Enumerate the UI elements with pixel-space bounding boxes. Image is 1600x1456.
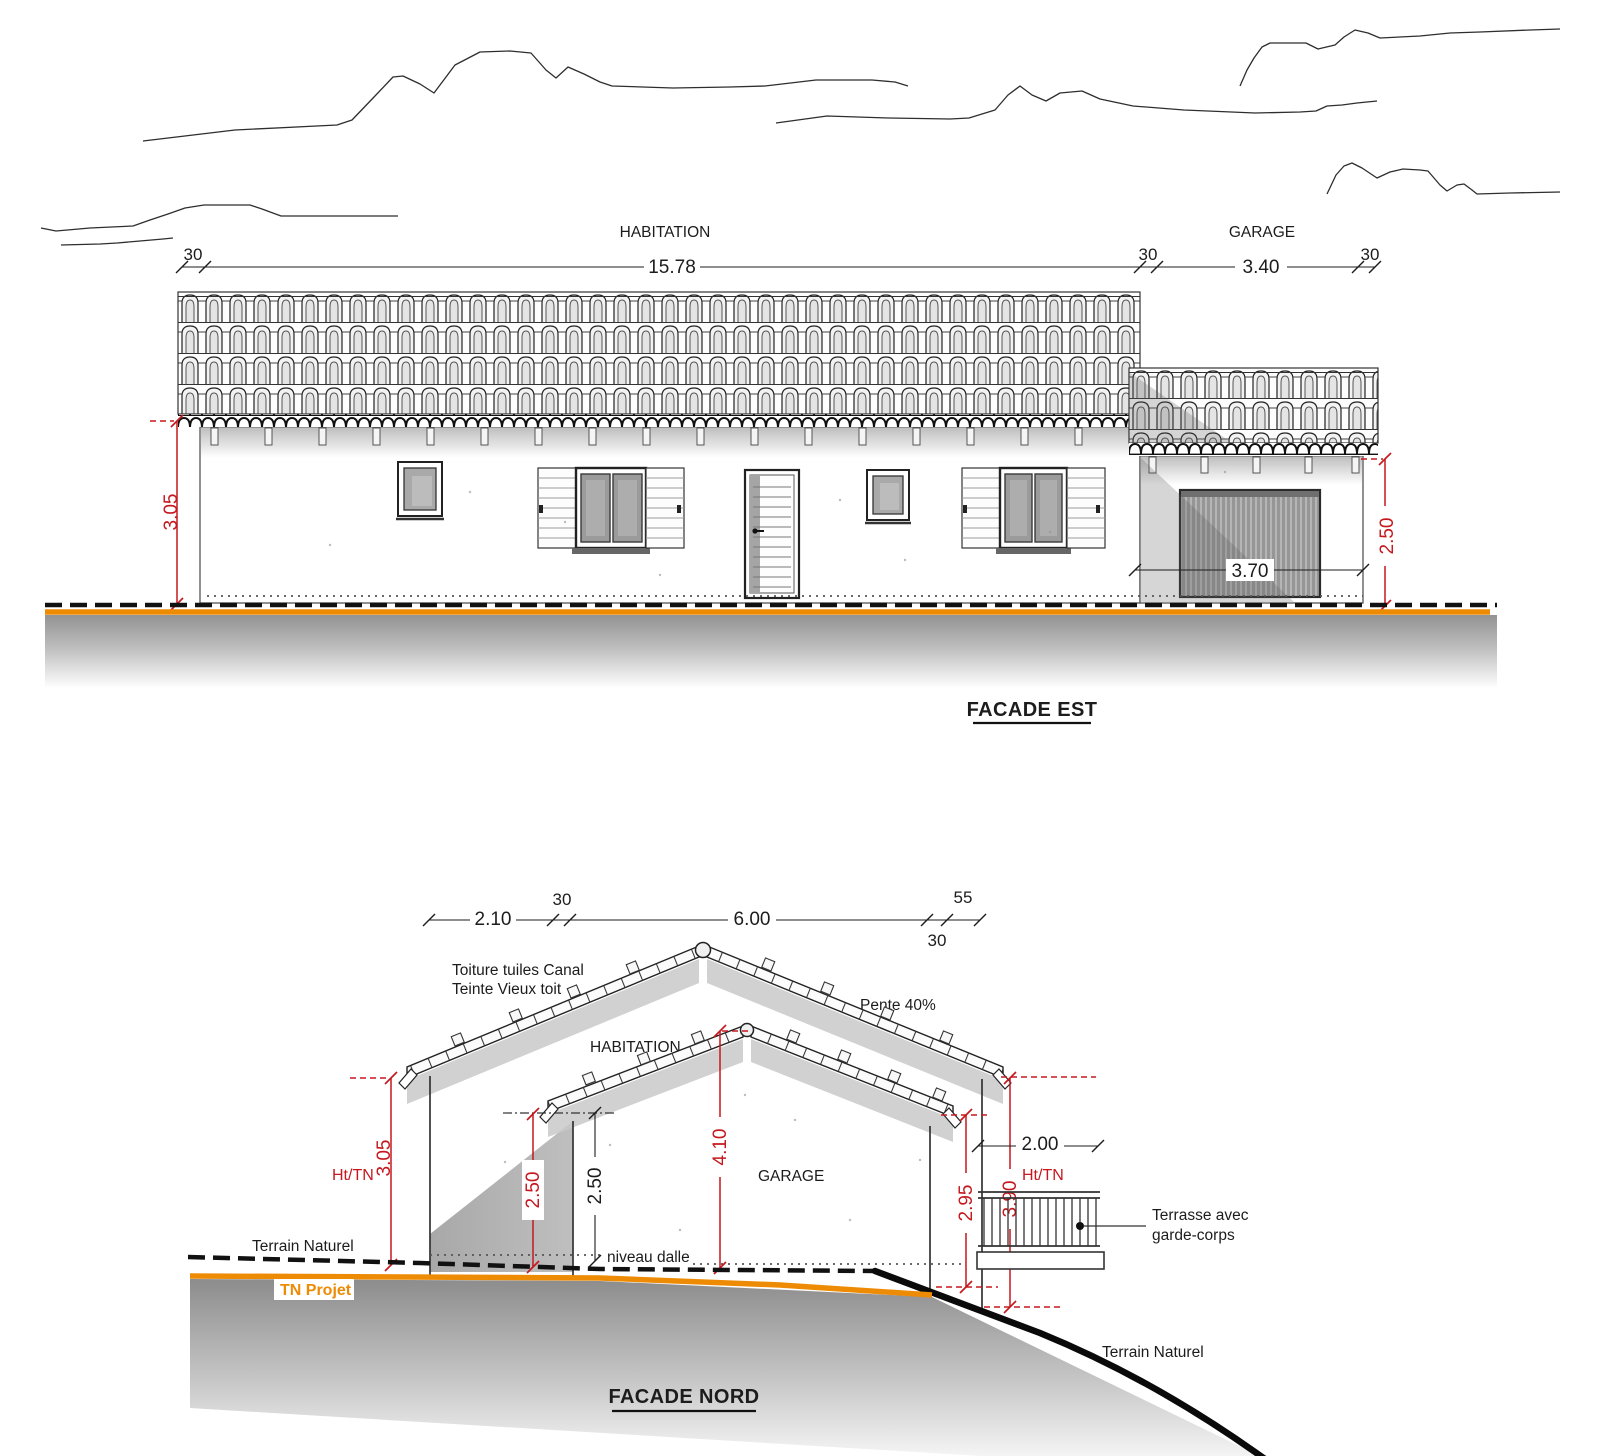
facade-nord-drawing: 2.10 30 6.00 55 30 Toiture tuiles Canal … [188,888,1272,1456]
nord-roof-note-2: Teinte Vieux toit [452,981,562,998]
nord-terrasse-label-2: garde-corps [1152,1227,1235,1244]
est-window-small-2 [865,470,911,523]
est-garage: 3.70 [1129,368,1378,603]
nord-dim-200: 2.00 [1022,1134,1059,1155]
nord-garage-ridge-cap [741,1024,754,1037]
nord-dim-305: 3.05 [374,1140,395,1177]
nord-title-text: FACADE NORD [608,1386,759,1408]
est-dim-250: 2.50 [1377,518,1398,555]
est-window-shuttered-2 [962,468,1105,554]
shutter-left [538,468,576,548]
est-dim-370: 3.70 [1232,561,1269,582]
est-dim-30-mid: 30 [1139,245,1158,264]
nord-slope-label: Pente 40% [860,997,936,1014]
architectural-sheet: HABITATION GARAGE 30 15.78 30 3.40 30 [0,0,1600,1456]
nord-dim-390: 3.90 [1000,1181,1021,1218]
est-dim-height-garage: 2.50 [1361,453,1398,612]
est-habitation-label: HABITATION [620,224,711,241]
est-garage-label: GARAGE [1229,224,1295,241]
nord-dim-410: 4.10 [710,1129,731,1166]
est-garage-eave-scallops [1129,443,1378,456]
nord-habitation-label: HABITATION [590,1039,681,1056]
est-eave-scallops [178,414,1140,427]
nord-terrace-slab [977,1252,1104,1269]
nord-garage-label: GARAGE [758,1168,824,1185]
nord-httn-left: Ht/TN [332,1167,374,1184]
nord-dim-600: 6.00 [734,909,771,930]
nord-dim-55: 55 [954,888,973,907]
leader-dot [1076,1222,1084,1230]
est-dim-30-right: 30 [1361,245,1380,264]
nord-httn-right: Ht/TN [1022,1167,1064,1184]
window-sill [996,548,1071,554]
est-top-dimension-chain: HABITATION GARAGE 30 15.78 30 3.40 30 [176,224,1381,278]
nord-title: FACADE NORD [608,1386,759,1411]
nord-dim-30-below: 30 [928,931,947,950]
est-title: FACADE EST [967,699,1098,723]
est-dim-340: 3.40 [1243,257,1280,278]
nord-dim-terrace-width: 2.00 [972,1133,1104,1155]
nord-terrasse-label-1: Terrasse avec [1152,1207,1249,1224]
nord-terrain-naturel-left: Terrain Naturel [252,1238,354,1255]
est-window-shuttered-1 [538,468,684,554]
facade-est-drawing: HABITATION GARAGE 30 15.78 30 3.40 30 [45,224,1497,723]
est-dim-305: 3.05 [161,494,182,531]
nord-tn-projet-label: TN Projet [280,1282,352,1299]
nord-ground: Terrain Naturel TN Projet Terrain Nature… [188,1238,1272,1456]
est-eave-shadow [201,428,1139,458]
nord-terrain-naturel-right: Terrain Naturel [1102,1344,1204,1361]
nord-gable-shadow [430,1121,573,1272]
est-dim-1578: 15.78 [648,257,696,278]
est-ground [45,596,1497,687]
shutter-left [962,468,1000,548]
est-title-text: FACADE EST [967,699,1098,721]
est-dim-30-left: 30 [184,245,203,264]
est-dim-height-habitation: 3.05 [150,415,183,610]
nord-dim-295: 2.95 [956,1185,977,1222]
shutter-right [646,468,684,548]
nord-dim-250-red: 2.50 [523,1172,544,1209]
nord-roof-note-1: Toiture tuiles Canal [452,962,584,979]
nord-dim-height-garage-black: 2.50 [584,1107,606,1267]
est-entrance-door [745,470,799,598]
nord-dim-250-black: 2.50 [585,1168,606,1205]
background-terrain-outlines [41,29,1560,245]
nord-dim-210: 2.10 [475,909,512,930]
facade-drawings: HABITATION GARAGE 30 15.78 30 3.40 30 [0,0,1600,1456]
nord-dim-30-top: 30 [553,890,572,909]
nord-habitation-ridge-cap [696,943,711,958]
window-sill [572,548,650,554]
nord-top-dimension-chain: 2.10 30 6.00 55 30 [423,888,986,950]
est-window-small-1 [396,462,444,519]
nord-niveau-dalle-label: niveau dalle [607,1249,690,1266]
est-habitation-roof [178,292,1140,427]
shutter-right [1067,468,1105,548]
